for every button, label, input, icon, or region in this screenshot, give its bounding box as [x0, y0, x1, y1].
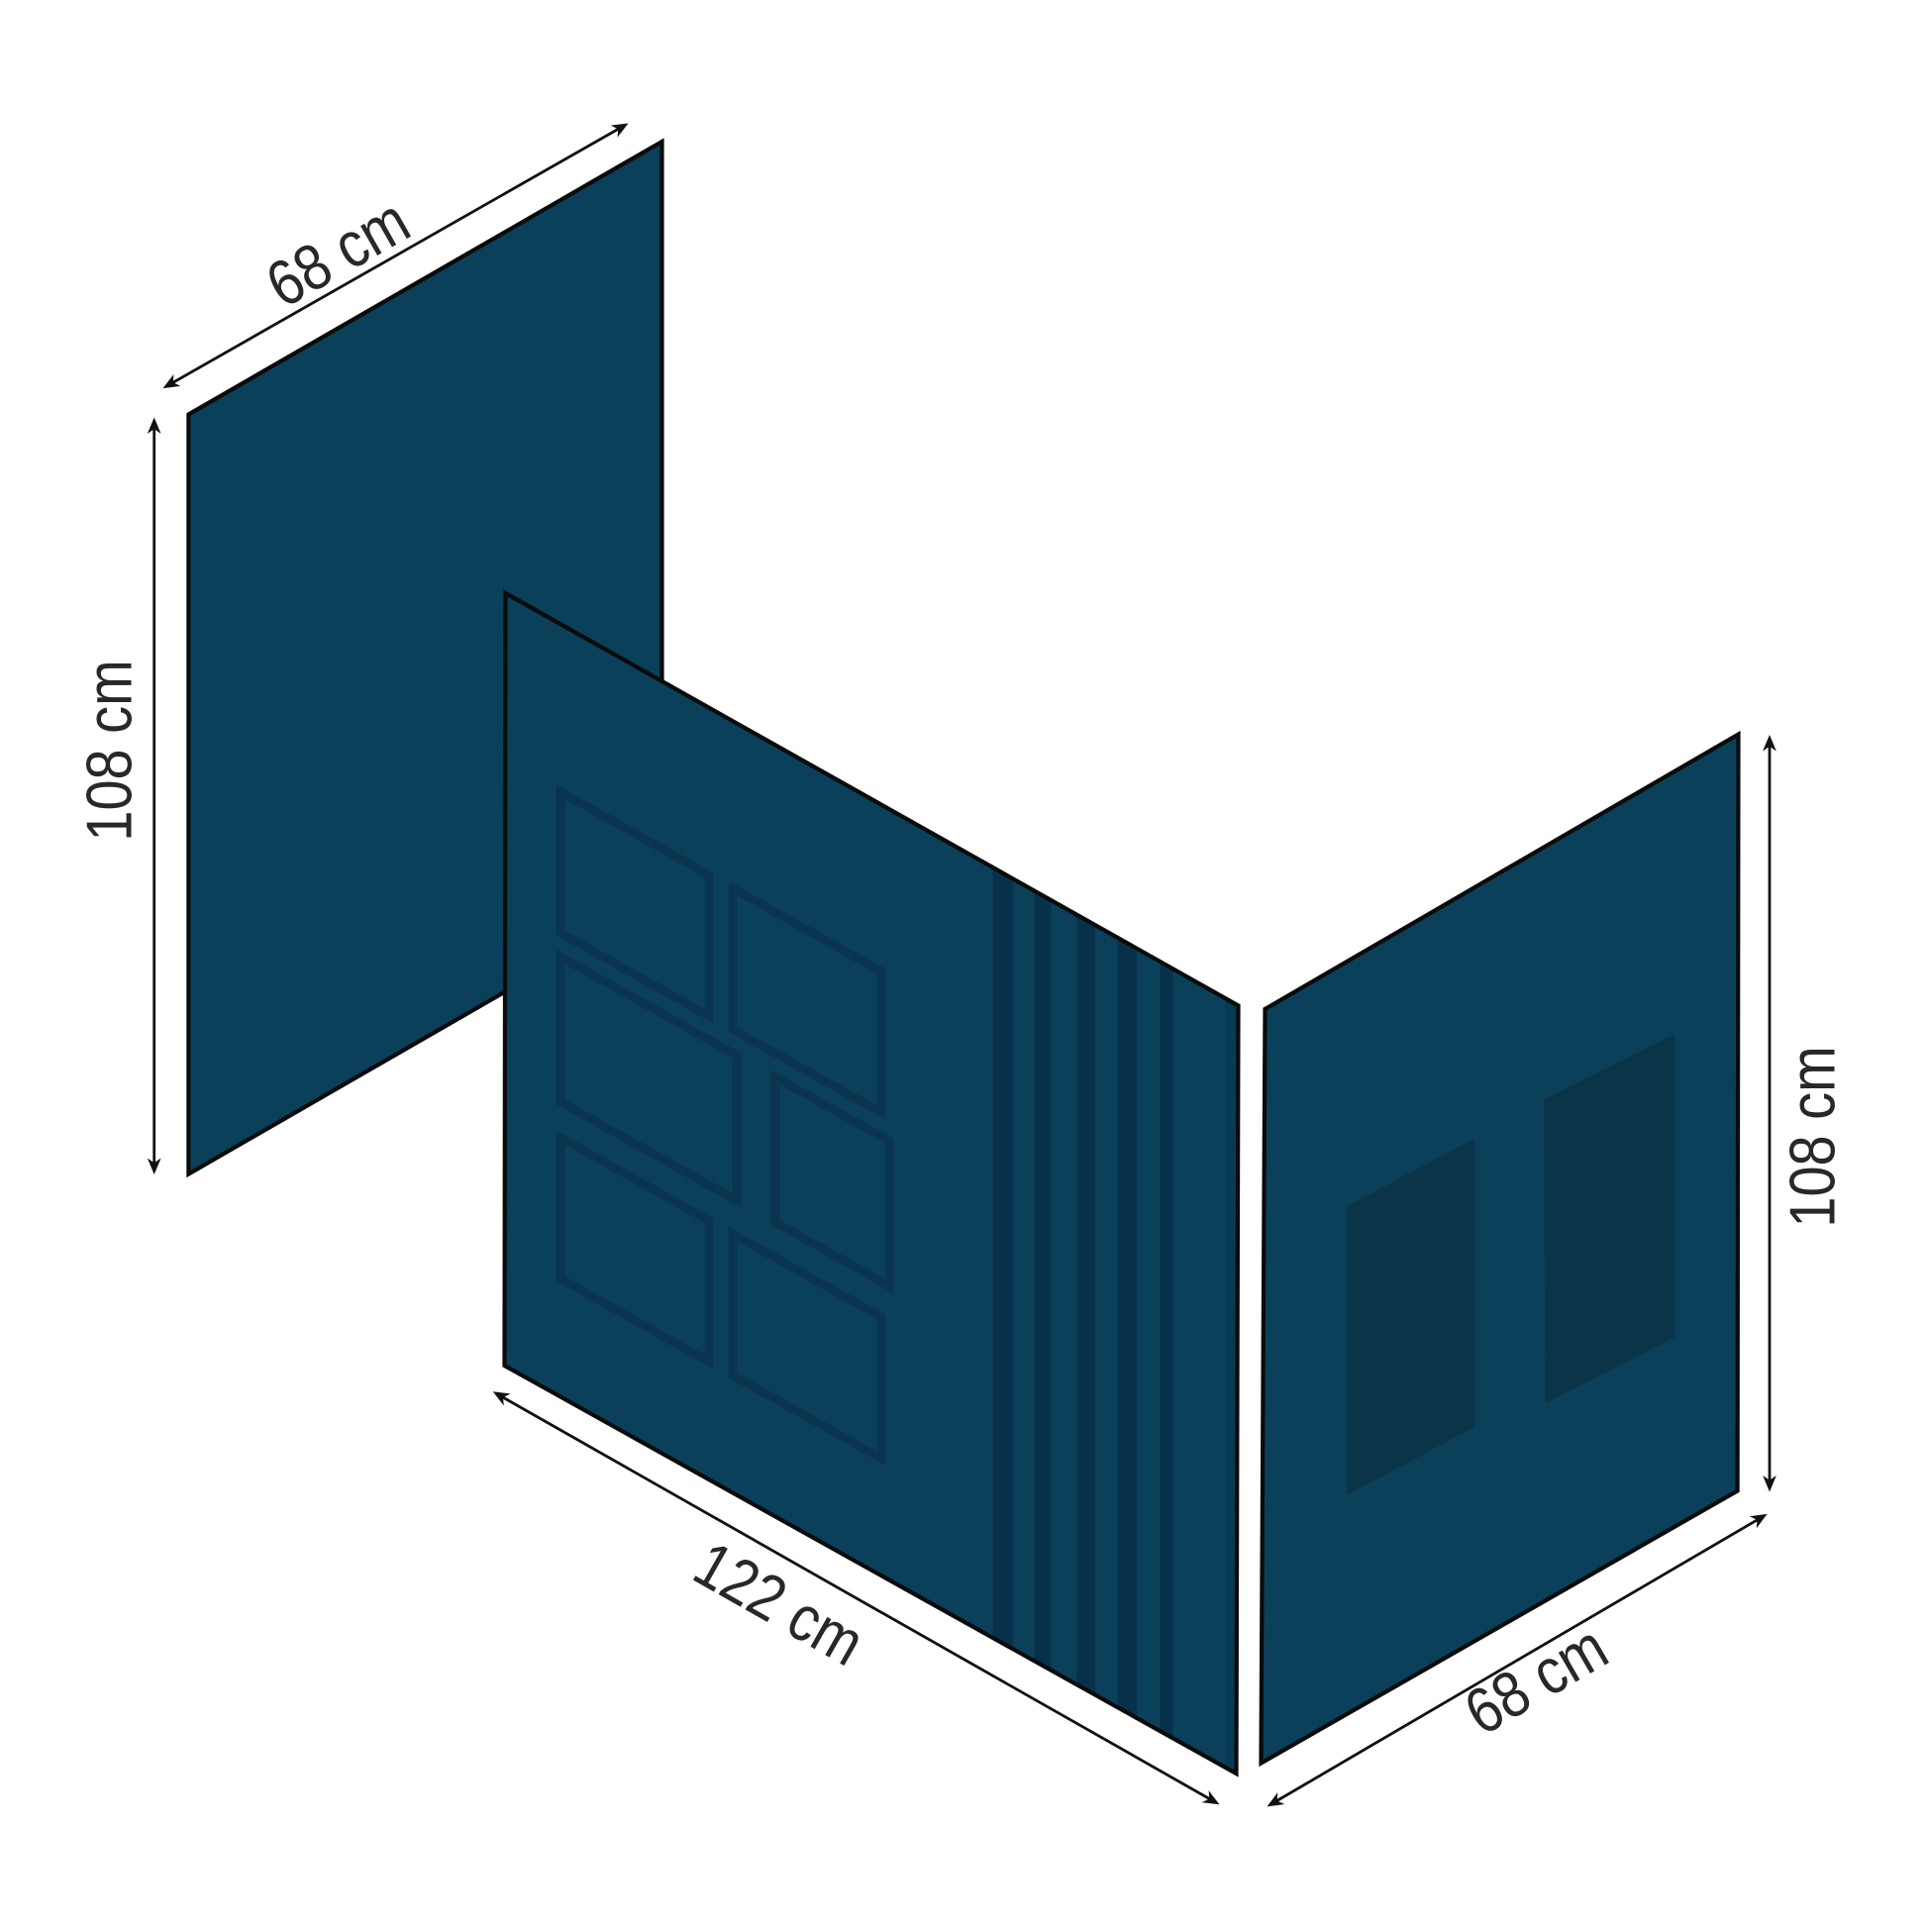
svg-text:108 cm: 108 cm: [73, 660, 146, 841]
svg-text:108 cm: 108 cm: [1776, 1046, 1849, 1227]
